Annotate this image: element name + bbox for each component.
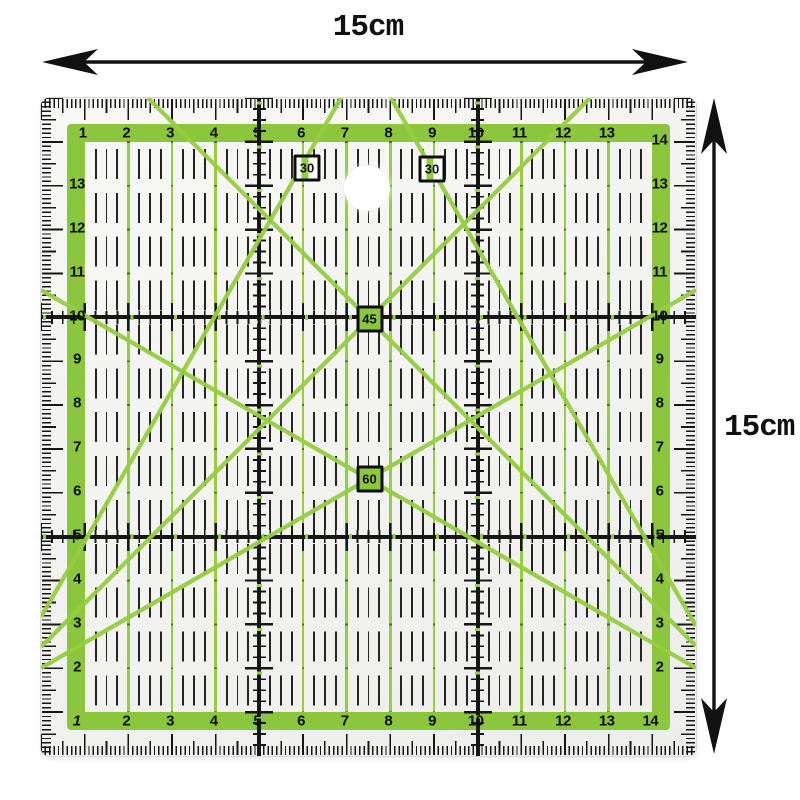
scale-number: 7	[341, 125, 349, 142]
scale-number: 10	[69, 307, 85, 324]
scale-number: 6	[73, 483, 81, 500]
angle-marker-label: 60	[362, 472, 376, 487]
scale-number: 1	[79, 125, 87, 142]
quilting-ruler: 1234567891011121312345678910111213141312…	[40, 97, 697, 757]
scale-number: 6	[656, 483, 664, 500]
scale-number: 12	[555, 125, 571, 142]
scale-number: 2	[73, 658, 81, 675]
scale-number: 9	[428, 713, 436, 730]
angle-marker-45: 45	[356, 306, 383, 333]
scale-number: 4	[656, 570, 664, 587]
scale-number: 13	[69, 176, 85, 193]
scale-number: 8	[656, 395, 664, 412]
scale-number: 11	[652, 263, 667, 280]
scale-number: 3	[73, 614, 81, 631]
angle-marker-label: 30	[300, 161, 314, 176]
scale-number: 11	[512, 125, 527, 142]
scale-number: 11	[70, 263, 85, 280]
angle-marker-30-right: 30	[419, 156, 446, 183]
scale-number: 4	[210, 125, 218, 142]
scale-number: 5	[253, 125, 261, 142]
scale-number: 3	[166, 713, 174, 730]
scale-number: 14	[652, 132, 668, 149]
scale-number: 10	[652, 307, 668, 324]
scale-number: 2	[122, 713, 130, 730]
scale-number: 6	[297, 125, 305, 142]
angle-marker-label: 30	[425, 162, 439, 177]
scale-number: 3	[166, 125, 174, 142]
scale-number: 2	[122, 125, 130, 142]
scale-number: 11	[512, 713, 527, 730]
height-label: 15cm	[724, 410, 794, 445]
scale-number: 1	[73, 713, 81, 730]
scale-number: 12	[555, 713, 571, 730]
width-label: 15cm	[268, 10, 468, 45]
scale-number: 14	[642, 713, 658, 730]
scale-number: 9	[73, 351, 81, 368]
scale-number: 7	[73, 439, 81, 456]
angle-marker-30-left: 30	[294, 155, 321, 182]
scale-number: 7	[656, 439, 664, 456]
scale-number: 5	[656, 526, 664, 543]
scale-number: 8	[384, 713, 392, 730]
scale-number: 10	[468, 125, 484, 142]
scale-number: 2	[656, 658, 664, 675]
scale-number: 5	[73, 526, 81, 543]
scale-number: 8	[384, 125, 392, 142]
scale-number: 9	[428, 125, 436, 142]
scale-number: 6	[297, 713, 305, 730]
height-dimension-arrow	[697, 96, 731, 756]
angle-marker-60: 60	[356, 466, 383, 493]
scale-number: 12	[69, 219, 85, 236]
scale-number: 13	[652, 176, 668, 193]
product-photo: 15cm 15cm 123456789101112131234567891011	[0, 0, 800, 800]
scale-number: 4	[73, 570, 81, 587]
scale-number: 3	[656, 614, 664, 631]
width-dimension-arrow	[40, 45, 690, 79]
scale-number: 10	[468, 713, 484, 730]
scale-number: 5	[253, 713, 261, 730]
scale-number: 9	[656, 351, 664, 368]
hanging-hole	[344, 165, 390, 211]
scale-number: 12	[652, 219, 668, 236]
scale-number: 13	[599, 125, 615, 142]
scale-number: 13	[599, 713, 615, 730]
angle-marker-label: 45	[362, 312, 376, 327]
scale-number: 4	[210, 713, 218, 730]
scale-number: 7	[341, 713, 349, 730]
scale-number: 8	[73, 395, 81, 412]
